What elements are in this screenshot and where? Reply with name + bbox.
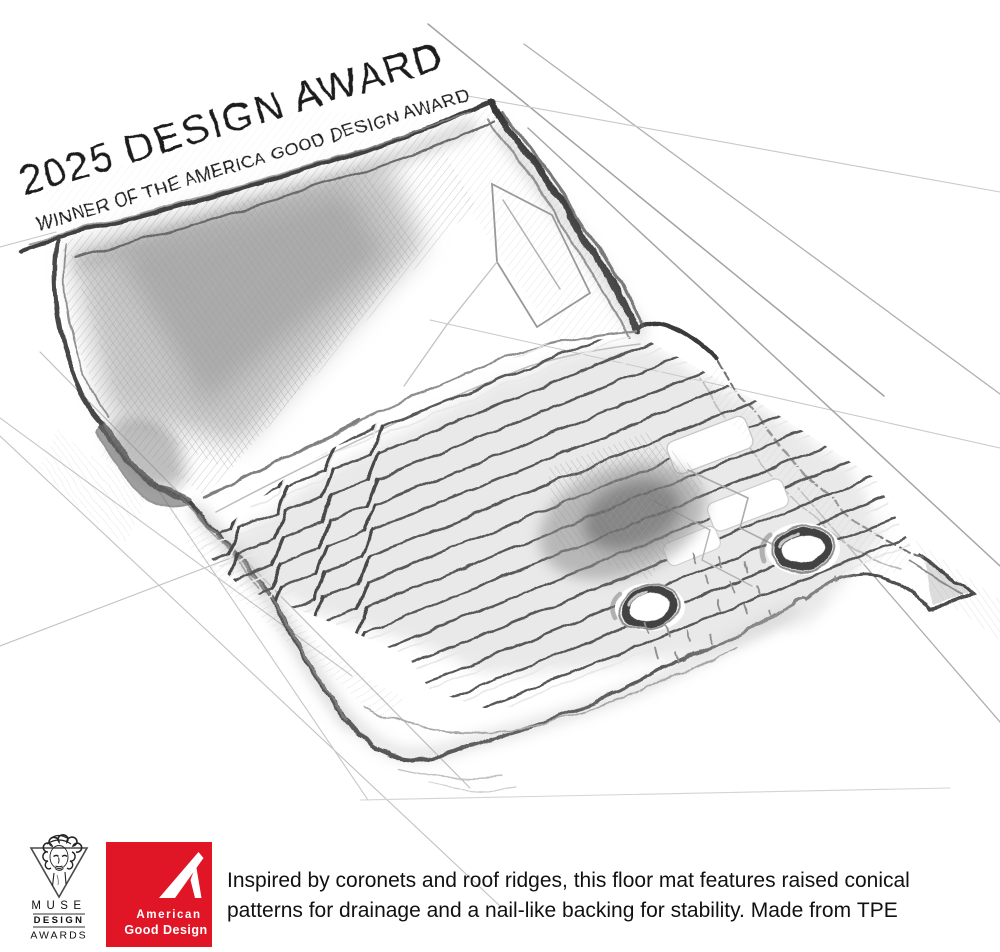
svg-text:American: American — [136, 909, 201, 921]
svg-text:AWARDS: AWARDS — [30, 930, 87, 942]
svg-text:DESIGN: DESIGN — [34, 915, 85, 926]
svg-text:Good Design: Good Design — [124, 923, 207, 937]
svg-text:MUSE: MUSE — [31, 900, 86, 912]
